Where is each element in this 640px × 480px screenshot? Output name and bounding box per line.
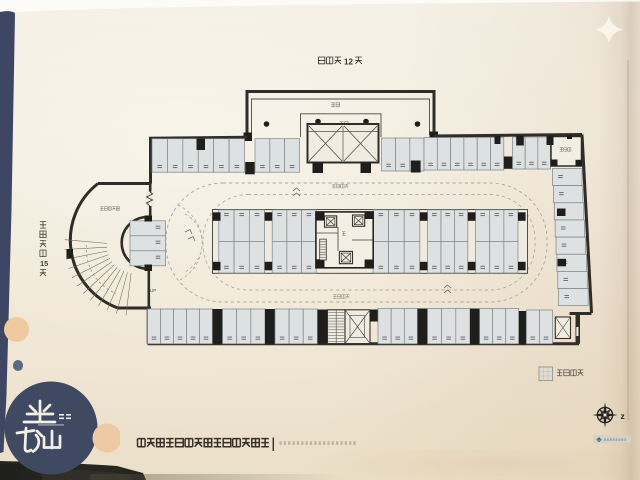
svg-text:12: 12: [344, 58, 353, 67]
svg-text:UP: UP: [150, 288, 156, 293]
svg-text:z: z: [621, 411, 625, 421]
svg-text:15: 15: [40, 259, 48, 268]
